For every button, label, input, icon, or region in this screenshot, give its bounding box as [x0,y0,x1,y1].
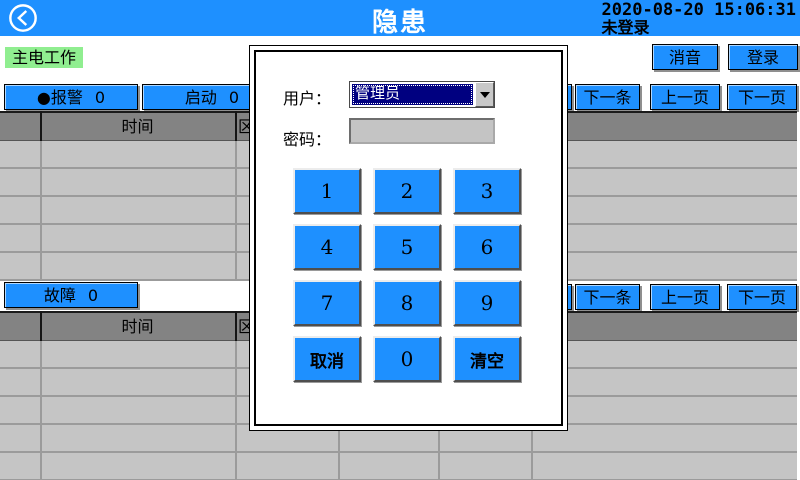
column-divider [40,341,42,480]
user-selected-value: 管理员 [352,84,473,105]
column-divider [40,141,42,281]
fault-next-item-button[interactable]: 下一条 [575,284,640,310]
alarm-prev-page-button[interactable]: 上一页 [650,84,720,110]
fault-prev-page-button[interactable]: 上一页 [650,284,720,310]
login-status-text: 未登录 [602,19,796,36]
top-bar: 隐患 2020-08-20 15:06:31 未登录 [0,0,800,36]
start-label: 启动 [185,88,217,107]
column-divider [235,341,237,480]
alarm-dot-icon: ● [37,88,51,107]
table-row [0,453,797,480]
alarm-count-button[interactable]: ●报警0 [4,84,138,110]
fault-next-page-button[interactable]: 下一页 [727,284,797,310]
keypad-0[interactable]: 0 [373,336,441,382]
mute-button[interactable]: 消音 [652,44,718,70]
keypad-7[interactable]: 7 [293,280,361,326]
keypad-9[interactable]: 9 [453,280,521,326]
column-divider [235,141,237,281]
login-button[interactable]: 登录 [728,44,798,70]
fault-count-button[interactable]: 故障0 [4,282,138,308]
login-dialog-frame: 用户： 管理员 密码： 1 2 3 4 5 6 7 8 9 取消 0 [254,50,563,426]
password-label: 密码： [283,126,331,150]
column-divider [40,311,42,341]
alarm-next-item-button[interactable]: 下一条 [575,84,640,110]
user-label: 用户： [283,85,331,109]
keypad-2[interactable]: 2 [373,168,441,214]
keypad-cancel-button[interactable]: 取消 [293,336,361,382]
column-divider [235,311,237,341]
main-power-status-badge: 主电工作 [5,47,83,68]
password-input[interactable] [349,118,495,144]
user-select[interactable]: 管理员 [349,81,495,108]
keypad-1[interactable]: 1 [293,168,361,214]
keypad-6[interactable]: 6 [453,224,521,270]
keypad-clear-button[interactable]: 清空 [453,336,521,382]
time-column-header: 时间 [40,113,235,140]
datetime-text: 2020-08-20 15:06:31 [602,1,796,19]
alarm-label: 报警 [51,88,83,107]
alarm-next-page-button[interactable]: 下一页 [727,84,797,110]
fault-count: 0 [88,286,98,305]
time-column-header: 时间 [40,313,235,340]
start-count: 0 [229,88,239,107]
fault-label: 故障 [44,286,76,305]
column-divider [40,111,42,141]
dropdown-button[interactable] [475,82,494,107]
header-status-block: 2020-08-20 15:06:31 未登录 [602,1,796,36]
column-divider [235,111,237,141]
keypad-4[interactable]: 4 [293,224,361,270]
keypad-8[interactable]: 8 [373,280,441,326]
keypad-3[interactable]: 3 [453,168,521,214]
login-dialog: 用户： 管理员 密码： 1 2 3 4 5 6 7 8 9 取消 0 [249,45,568,431]
alarm-count: 0 [95,88,105,107]
numeric-keypad: 1 2 3 4 5 6 7 8 9 取消 0 清空 [293,168,521,382]
hmi-screen: 隐患 2020-08-20 15:06:31 未登录 主电工作 消音 登录 ●报… [0,0,800,480]
keypad-5[interactable]: 5 [373,224,441,270]
chevron-down-icon [480,92,490,98]
